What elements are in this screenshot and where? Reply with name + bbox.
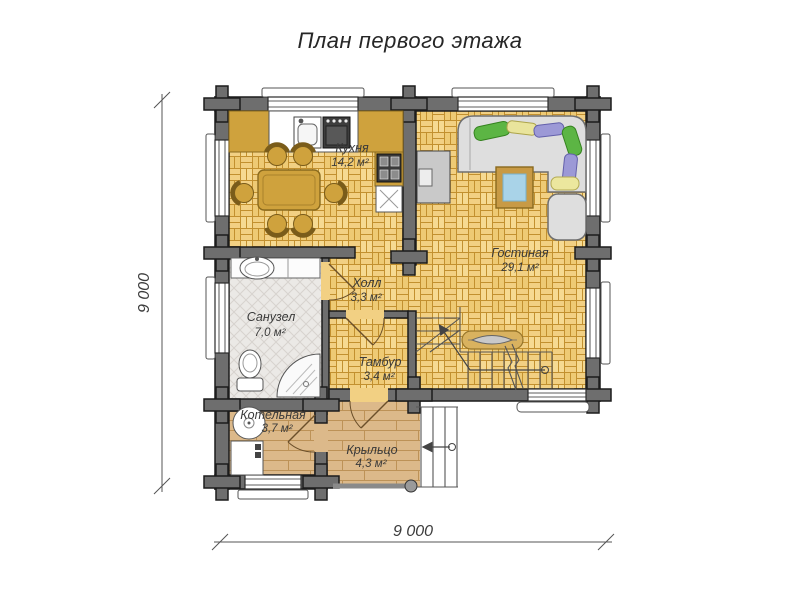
porch-post bbox=[405, 480, 417, 492]
sofa-pillow-yellow bbox=[551, 177, 579, 190]
wall-kitchen-bathroom bbox=[229, 247, 355, 258]
room-label-hall: Холл bbox=[352, 276, 382, 290]
cooktop-unit bbox=[377, 154, 401, 182]
window-bathroom-west bbox=[206, 277, 229, 359]
room-area-hall: 3,3 м² bbox=[351, 292, 383, 304]
dimension-vertical: 9 000 bbox=[136, 92, 170, 494]
vestibule-door-opening bbox=[346, 310, 384, 319]
chair bbox=[266, 215, 288, 236]
room-area-boiler: 3,7 м² bbox=[262, 423, 294, 435]
window-boiler-south bbox=[238, 475, 308, 499]
boiler-cabinet bbox=[231, 441, 263, 475]
coffee-table bbox=[496, 167, 533, 208]
chair bbox=[325, 182, 346, 204]
window-living-north bbox=[452, 88, 554, 111]
bathroom-vanity bbox=[231, 257, 320, 279]
chair bbox=[232, 182, 253, 204]
chair bbox=[266, 144, 288, 165]
window-kitchen-north bbox=[262, 88, 364, 111]
entrance-door-opening bbox=[350, 388, 388, 402]
room-label-bathroom: Санузел bbox=[247, 310, 296, 324]
room-label-living: Гостиная bbox=[491, 246, 548, 260]
kitchen-counter-left bbox=[229, 111, 269, 152]
room-label-porch: Крыльцо bbox=[346, 443, 397, 457]
room-area-porch: 4,3 м² bbox=[356, 458, 388, 470]
window-living-south bbox=[517, 389, 589, 412]
porch-floor bbox=[327, 392, 420, 487]
hall-bench bbox=[462, 331, 523, 349]
dimension-horizontal-value: 9 000 bbox=[393, 523, 433, 540]
bathroom-door-opening bbox=[321, 262, 330, 300]
chair bbox=[292, 215, 314, 236]
chair bbox=[292, 144, 314, 165]
room-area-vestibule: 3,4 м² bbox=[364, 371, 396, 383]
window-living-east-upper bbox=[586, 134, 610, 222]
room-area-bathroom: 7,0 м² bbox=[255, 327, 287, 339]
toilet bbox=[237, 350, 263, 391]
dining-table bbox=[258, 170, 320, 210]
outdoor-steps bbox=[416, 407, 458, 487]
room-label-boiler: Котельная bbox=[240, 408, 306, 422]
dimension-vertical-value: 9 000 bbox=[136, 273, 153, 313]
fireplace bbox=[417, 151, 450, 203]
plan-title: План первого этажа bbox=[297, 28, 522, 53]
room-label-vestibule: Тамбур bbox=[359, 355, 402, 369]
floor-plan-canvas: План первого этажа bbox=[0, 0, 800, 600]
window-living-east-lower bbox=[586, 282, 610, 364]
floor-plan-page: План первого этажа bbox=[0, 0, 800, 600]
room-area-kitchen: 14,2 м² bbox=[331, 157, 369, 169]
sofa-ottoman bbox=[548, 194, 586, 240]
dimension-horizontal: 9 000 bbox=[212, 523, 614, 550]
window-kitchen-west bbox=[206, 134, 229, 222]
dishwasher bbox=[376, 186, 402, 212]
room-label-kitchen: Кухня bbox=[335, 141, 369, 155]
room-area-living: 29,1 м² bbox=[500, 262, 539, 274]
